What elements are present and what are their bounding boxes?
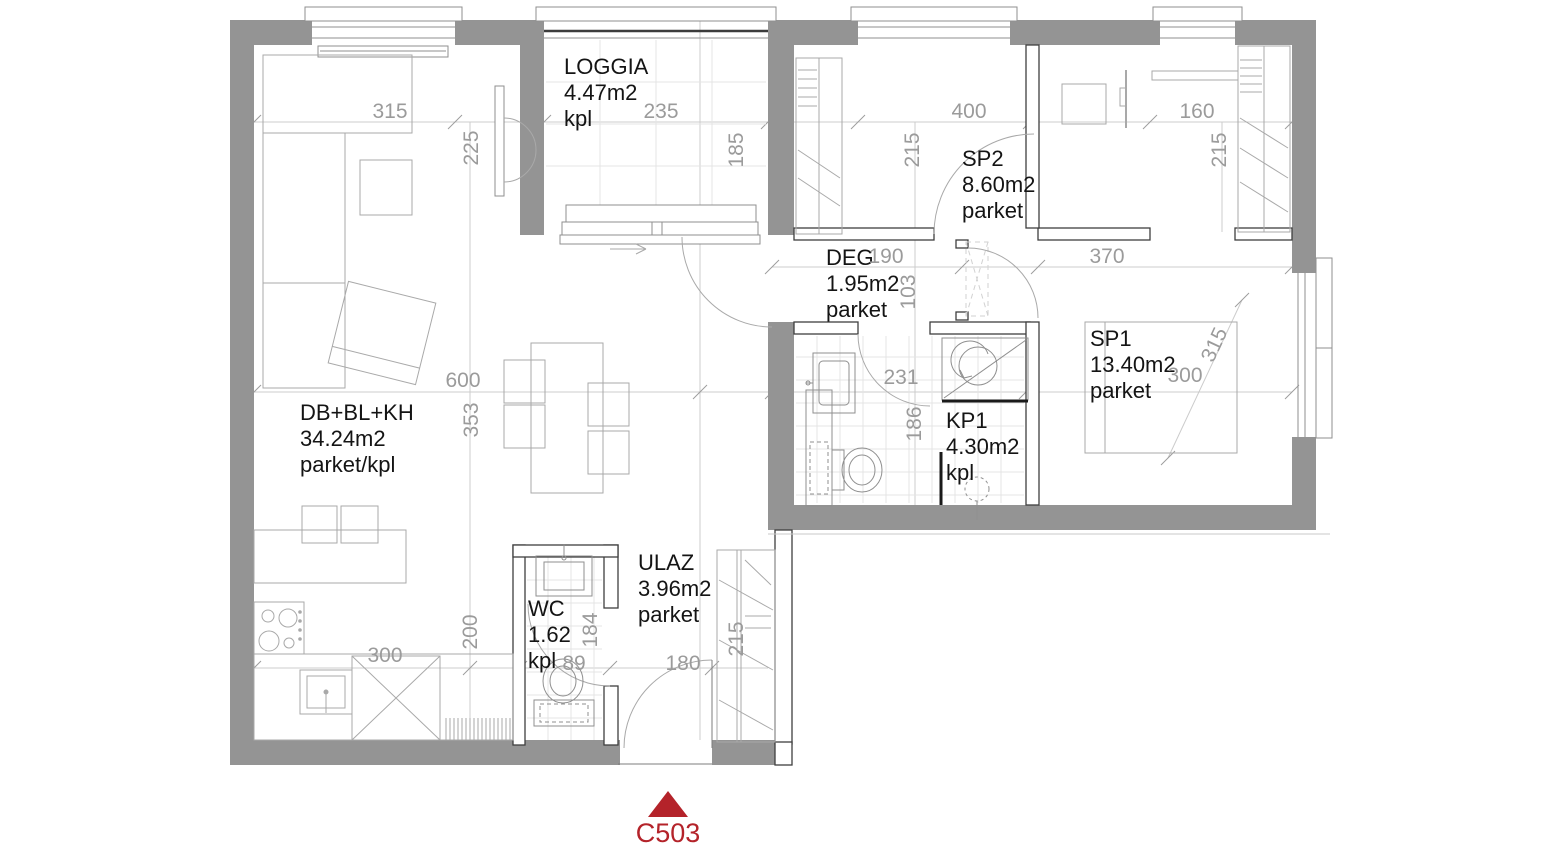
room-name: LOGGIA: [564, 54, 648, 80]
room-area: 34.24m2: [300, 426, 414, 452]
unit-label: C503: [636, 818, 701, 848]
bar-stool: [341, 506, 378, 543]
room-name: KP1: [946, 408, 1019, 434]
window-sp2: [851, 7, 1017, 38]
kp1-sink: [806, 353, 855, 413]
dim-kp1-depth: 186: [903, 406, 927, 441]
bar-stool: [302, 506, 337, 543]
dim-kitchen-width: 300: [367, 644, 402, 668]
room-area: 13.40m2: [1090, 352, 1176, 378]
door-sp2-leaf-open: [966, 242, 988, 316]
room-area: 3.96m2: [638, 576, 711, 602]
room-floor: parket: [826, 297, 899, 323]
room-area: 1.62: [528, 622, 571, 648]
room-floor: parket/kpl: [300, 452, 414, 478]
room-label-ulaz: ULAZ 3.96m2 parket: [638, 550, 711, 628]
dim-closet-depth: 215: [1208, 132, 1232, 167]
kp1-washing-machine: [806, 390, 832, 506]
room-label-kp1: KP1 4.30m2 kpl: [946, 408, 1019, 486]
dim-sp1-width: 300: [1167, 364, 1202, 388]
room-area: 4.47m2: [564, 80, 648, 106]
dim-living-top-depth: 225: [460, 130, 484, 165]
room-floor: parket: [1090, 378, 1176, 404]
room-floor: parket: [962, 198, 1035, 224]
dim-loggia-depth: 185: [725, 132, 749, 167]
room-area: 8.60m2: [962, 172, 1035, 198]
room-name: ULAZ: [638, 550, 711, 576]
dim-living-mid-width: 600: [445, 369, 480, 393]
dim-ulaz-depth: 215: [725, 621, 749, 656]
dim-kitchen-depth: 200: [459, 614, 483, 649]
dim-ulaz-width: 180: [665, 652, 700, 676]
dining-table-set: [504, 343, 629, 493]
kitchen-peninsula: [254, 530, 406, 583]
room-area: 4.30m2: [946, 434, 1019, 460]
dim-loggia-width: 235: [643, 100, 678, 124]
dim-closet-width: 160: [1179, 100, 1214, 124]
wc-cabinet: [534, 700, 594, 726]
room-name: WC: [528, 596, 571, 622]
window-living: [305, 7, 462, 57]
dim-deg-depth: 103: [897, 274, 921, 309]
unit-marker-triangle: [648, 791, 688, 817]
wardrobe-sp2: [796, 58, 842, 234]
stove: [254, 602, 304, 654]
dim-wc-width: 89: [562, 652, 585, 676]
dim-wc-depth: 184: [579, 612, 603, 647]
dim-sp2-depth: 215: [901, 132, 925, 167]
door-living-deg: [682, 237, 772, 327]
room-floor: kpl: [946, 460, 1019, 486]
room-name: SP2: [962, 146, 1035, 172]
dim-living-top-width: 315: [372, 100, 407, 124]
dim-sp1-top-width: 370: [1089, 245, 1124, 269]
dim-deg-width: 190: [868, 245, 903, 269]
room-floor: parket: [638, 602, 711, 628]
room-label-sp1: SP1 13.40m2 parket: [1090, 326, 1176, 404]
dim-kp1-width: 231: [883, 366, 918, 390]
dim-living-mid-depth: 353: [460, 402, 484, 437]
coffee-table: [328, 281, 436, 384]
room-area: 1.95m2: [826, 271, 899, 297]
window-closet: [1153, 7, 1242, 38]
dim-sp2-width: 400: [951, 100, 986, 124]
loggia-direction-arrow: [610, 244, 646, 254]
floor-plan: LOGGIA 4.47m2 kpl SP2 8.60m2 parket DEG …: [0, 0, 1560, 848]
room-label-sp2: SP2 8.60m2 parket: [962, 146, 1035, 224]
floor-plan-drawing: [0, 0, 1560, 848]
dishwasher-ticks: [446, 718, 510, 740]
room-label-living: DB+BL+KH 34.24m2 parket/kpl: [300, 400, 414, 478]
room-name: SP1: [1090, 326, 1176, 352]
room-floor: kpl: [564, 106, 648, 132]
room-name: DB+BL+KH: [300, 400, 414, 426]
room-label-loggia: LOGGIA 4.47m2 kpl: [564, 54, 648, 132]
window-sp1: [1298, 258, 1332, 438]
desk-sp2: [1062, 70, 1126, 128]
door-deg-sp1: [968, 248, 1038, 318]
